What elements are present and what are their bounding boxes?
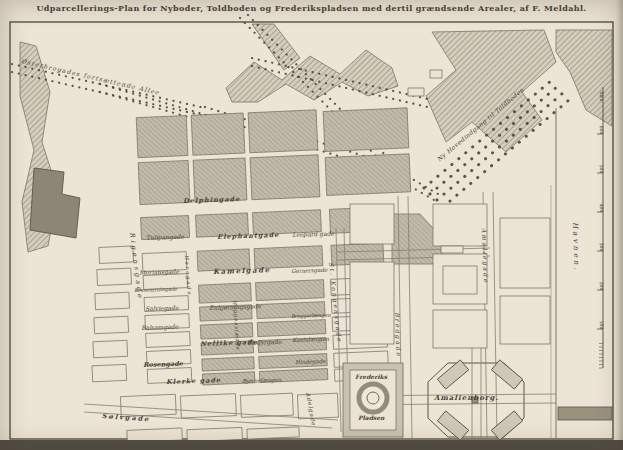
svg-text:400: 400: [599, 204, 604, 213]
map-canvas: 100200300400500600Alen.: [0, 0, 623, 450]
map-photo: Udparcellerings-Plan for Nyboder, Toldbo…: [0, 0, 623, 450]
photo-bottom-edge: [0, 440, 623, 450]
svg-text:500: 500: [599, 165, 604, 174]
svg-text:300: 300: [599, 243, 604, 252]
svg-text:600: 600: [599, 126, 604, 135]
frederiks-church-circle: [359, 384, 387, 412]
svg-text:100: 100: [599, 321, 604, 330]
photo-right-shadow: [616, 0, 623, 450]
svg-text:Alen.: Alen.: [599, 90, 604, 103]
svg-text:200: 200: [599, 282, 604, 291]
